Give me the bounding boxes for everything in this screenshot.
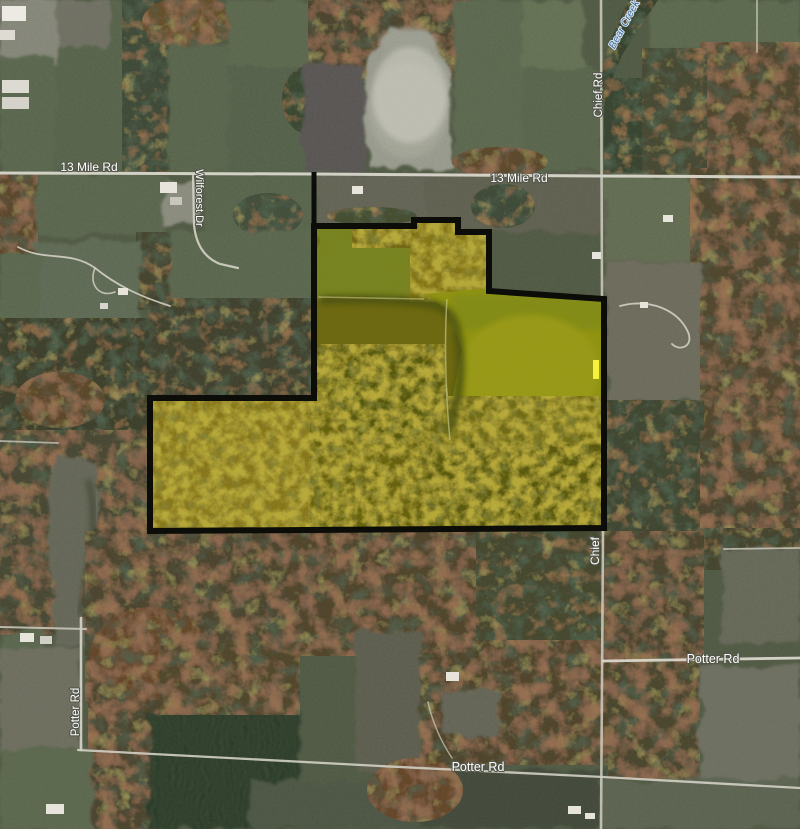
svg-text:Potter Rd: Potter Rd xyxy=(70,688,82,737)
svg-text:Wilforest Dr: Wilforest Dr xyxy=(193,169,205,227)
svg-text:Chief Rd: Chief Rd xyxy=(593,73,605,118)
svg-text:Potter Rd: Potter Rd xyxy=(452,760,505,774)
svg-text:13 Mile Rd: 13 Mile Rd xyxy=(60,160,117,174)
svg-text:Chief: Chief xyxy=(588,536,602,565)
svg-text:13 Mile Rd: 13 Mile Rd xyxy=(490,171,547,185)
svg-text:Potter Rd: Potter Rd xyxy=(687,652,740,666)
